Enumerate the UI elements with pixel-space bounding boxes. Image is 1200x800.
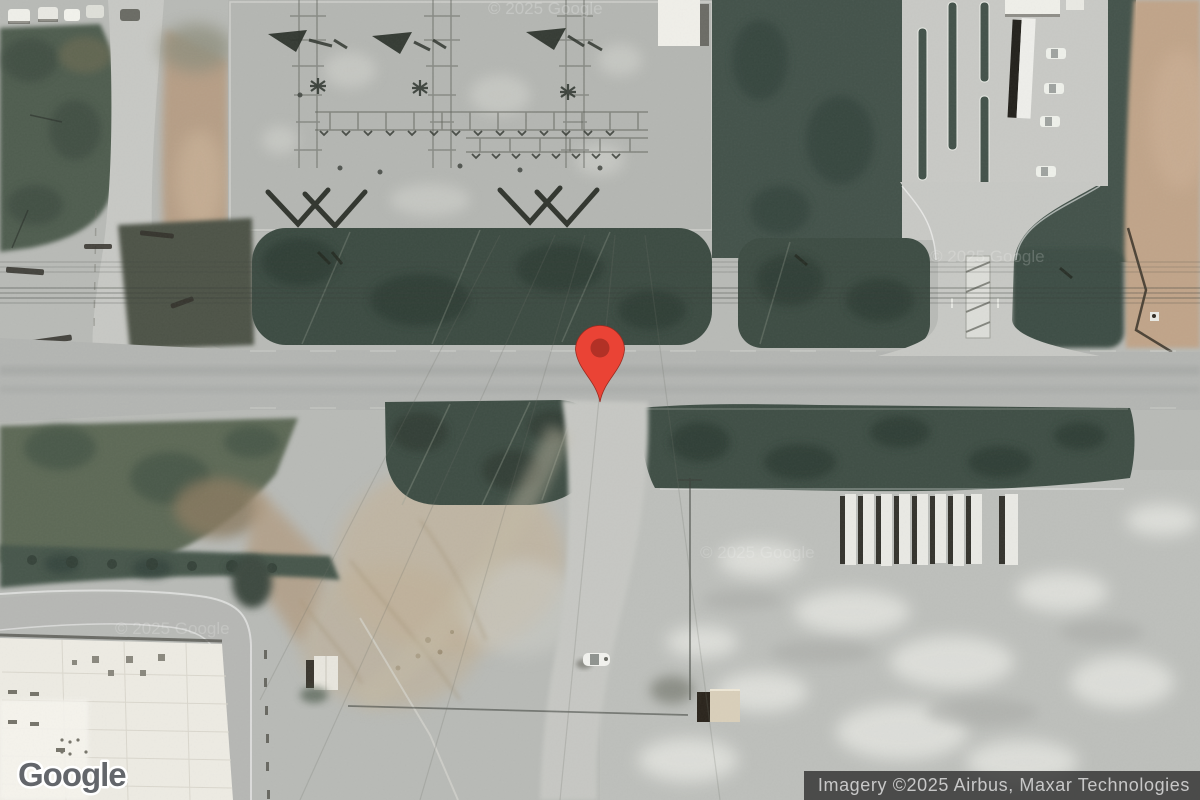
attribution-text: Imagery ©2025 Airbus, Maxar Technologies [818, 775, 1190, 795]
google-watermark: © 2025 Google [700, 543, 815, 562]
google-watermark: © 2025 Google [115, 619, 230, 638]
map-marker[interactable] [569, 312, 631, 404]
marker-pin-dot [591, 339, 610, 358]
marker-pin-body [576, 325, 625, 402]
map-viewport[interactable]: © 2025 Google © 2025 Google © 2025 Googl… [0, 0, 1200, 800]
google-logo[interactable]: Google [12, 752, 152, 798]
attribution-bar: Imagery ©2025 Airbus, Maxar Technologies [804, 771, 1200, 800]
google-watermark: © 2025 Google [488, 0, 603, 18]
google-watermark: © 2025 Google [930, 247, 1045, 266]
google-logo-text: Google [18, 756, 126, 793]
